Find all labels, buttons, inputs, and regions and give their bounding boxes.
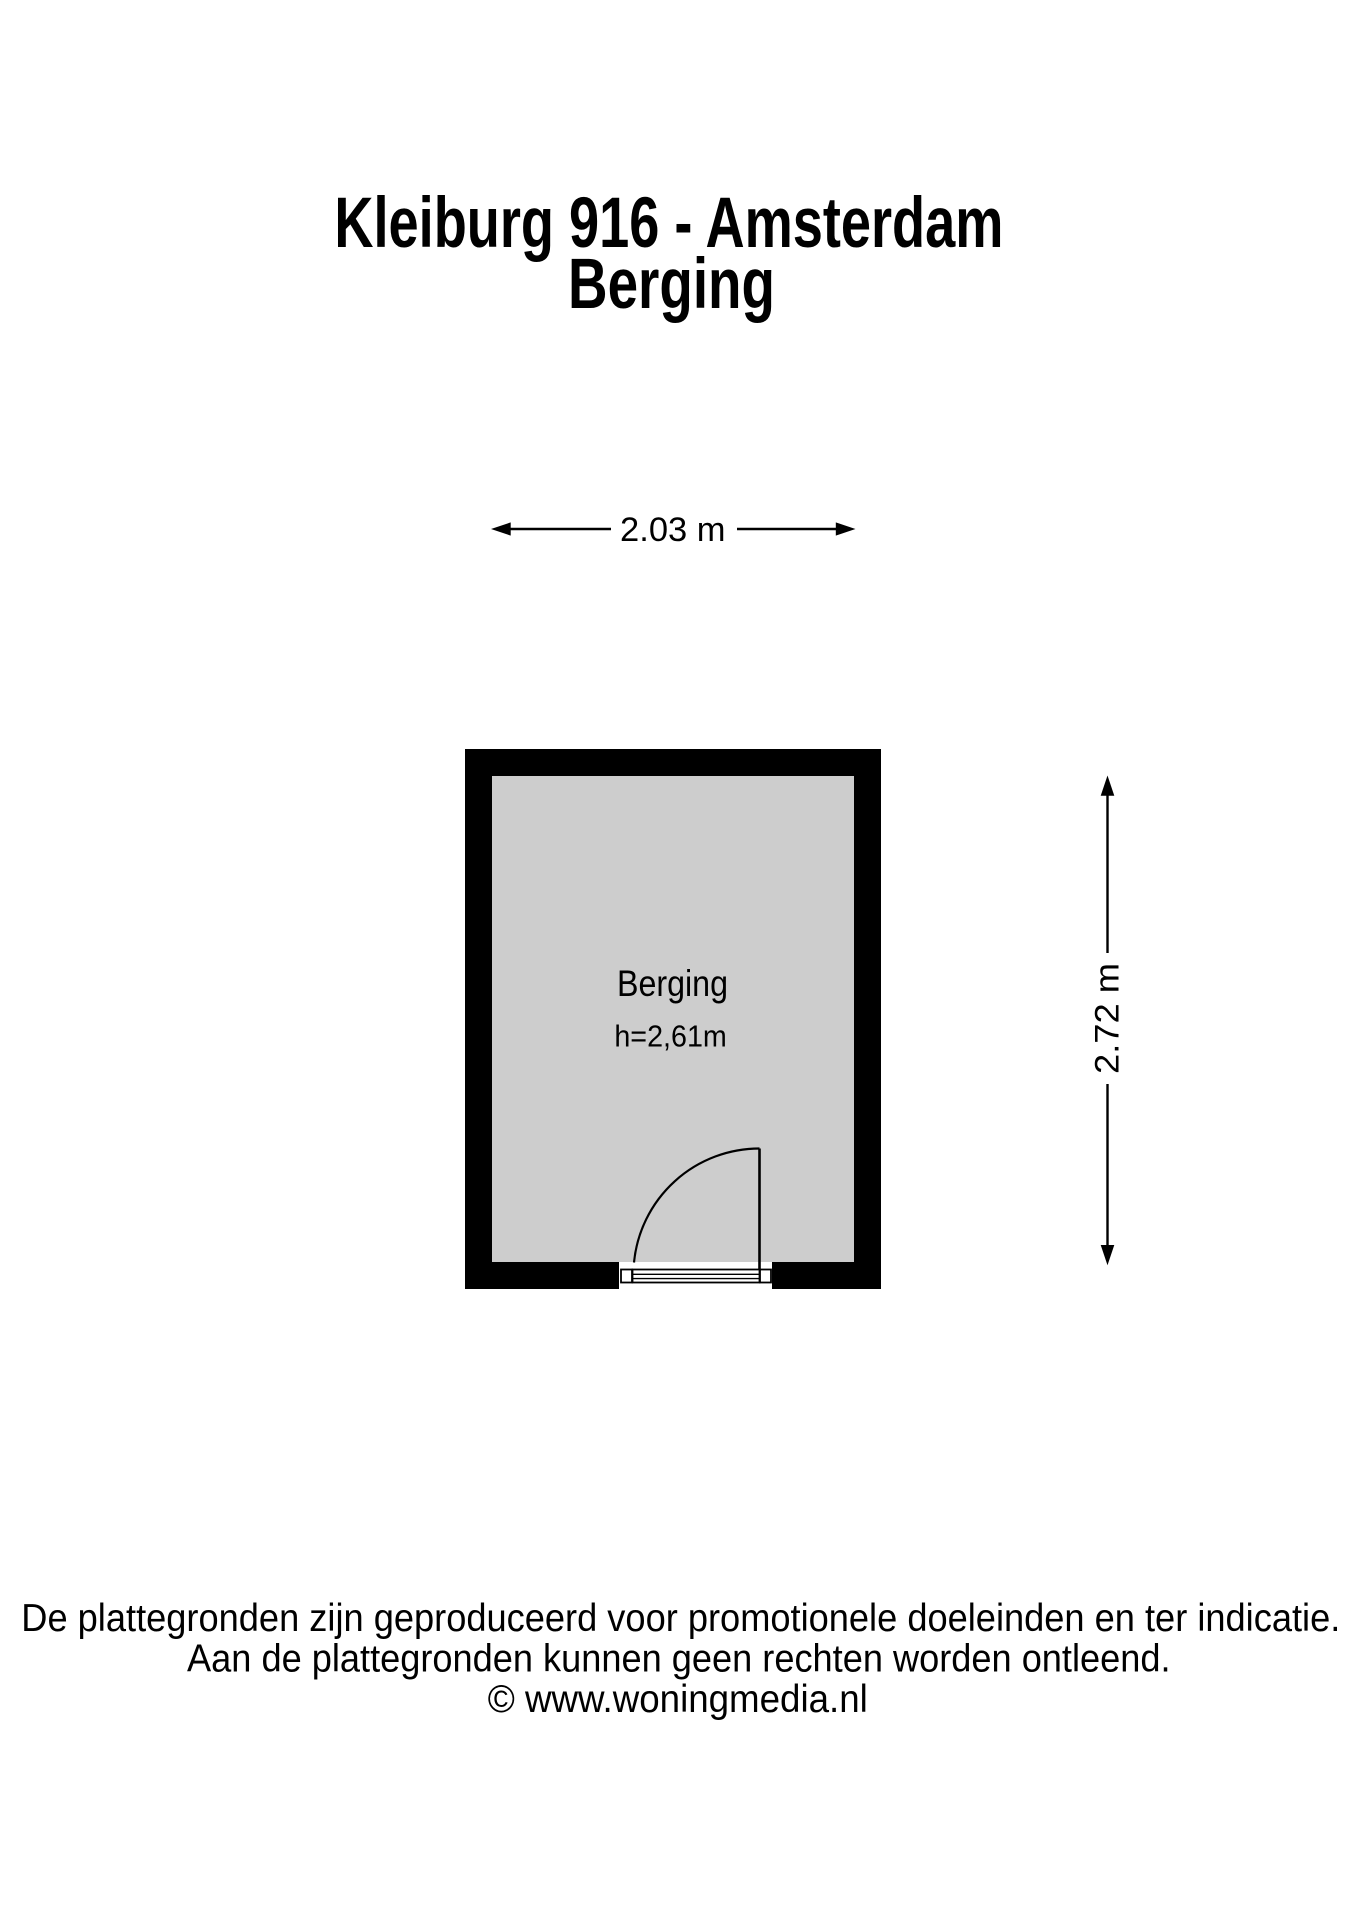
svg-text:2.03 m: 2.03 m <box>620 511 726 549</box>
svg-text:Aan de plattegronden kunnen ge: Aan de plattegronden kunnen geen rechten… <box>187 1638 1171 1681</box>
svg-text:2.72 m: 2.72 m <box>1089 963 1127 1074</box>
svg-text:h=2,61m: h=2,61m <box>614 1019 727 1054</box>
svg-text:De plattegronden zijn geproduc: De plattegronden zijn geproduceerd voor … <box>21 1597 1340 1640</box>
svg-text:Berging: Berging <box>568 245 775 324</box>
svg-text:Berging: Berging <box>617 963 728 1004</box>
svg-text:© www.woningmedia.nl: © www.woningmedia.nl <box>488 1678 868 1721</box>
